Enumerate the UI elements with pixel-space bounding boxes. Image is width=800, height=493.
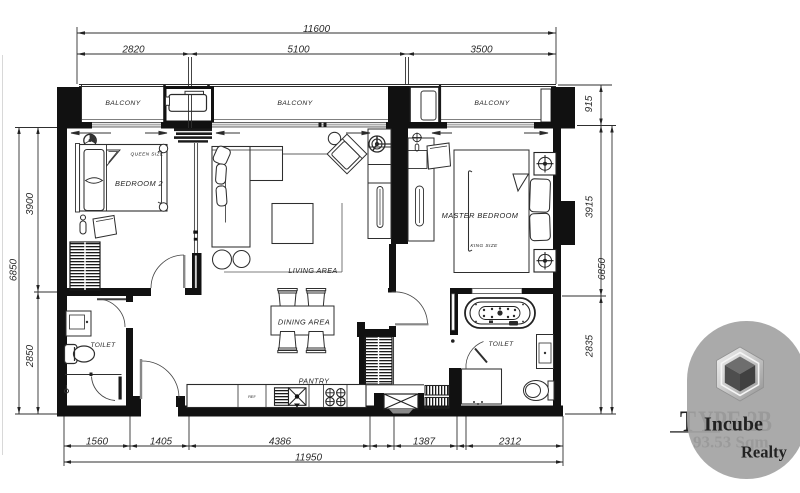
svg-text:Realty: Realty [741,443,788,462]
svg-text:BALCONY: BALCONY [277,100,312,107]
svg-text:MASTER BEDROOM: MASTER BEDROOM [442,211,519,220]
svg-text:KING SIZE: KING SIZE [470,243,498,249]
svg-text:BALCONY: BALCONY [105,100,140,107]
svg-text:1405: 1405 [150,437,173,448]
svg-text:1560: 1560 [86,437,109,448]
svg-text:Incube: Incube [704,414,763,436]
svg-text:TOILET: TOILET [488,341,514,348]
svg-text:REF: REF [248,395,256,399]
svg-text:3915: 3915 [585,195,596,218]
svg-text:3500: 3500 [470,45,493,56]
svg-text:QUEEN SIZE: QUEEN SIZE [130,152,163,158]
svg-text:2835: 2835 [585,334,596,358]
svg-text:4386: 4386 [269,437,292,448]
svg-text:11950: 11950 [295,453,323,464]
svg-text:2312: 2312 [498,437,522,448]
svg-text:2850: 2850 [25,344,36,368]
svg-text:2820: 2820 [121,45,145,56]
svg-text:TOILET: TOILET [90,342,116,349]
svg-text:915: 915 [584,95,595,112]
svg-text:3900: 3900 [25,192,36,215]
svg-text:6850: 6850 [597,257,608,280]
svg-text:5100: 5100 [287,45,310,56]
svg-text:6850: 6850 [9,258,20,281]
svg-text:DINING AREA: DINING AREA [278,318,330,327]
svg-text:1387: 1387 [413,437,436,448]
svg-text:BALCONY: BALCONY [474,100,509,107]
svg-text:11600: 11600 [303,24,331,35]
svg-text:BEDROOM 2: BEDROOM 2 [115,179,163,188]
svg-text:LIVING AREA: LIVING AREA [288,266,337,275]
